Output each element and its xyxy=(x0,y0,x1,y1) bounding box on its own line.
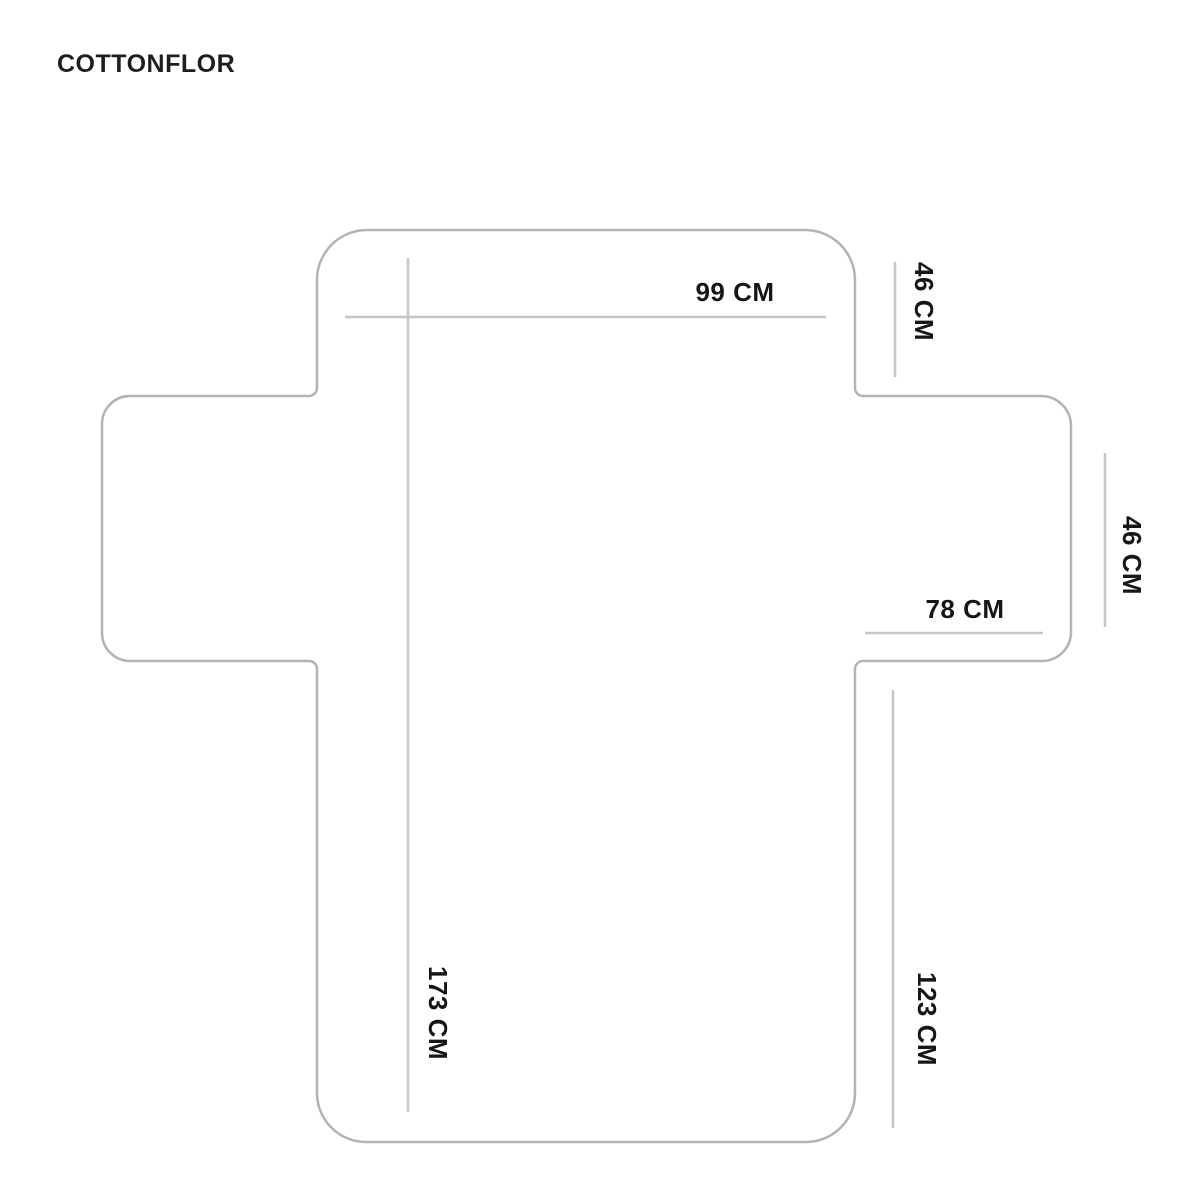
dimension-label-back-drop: 46 CM xyxy=(908,262,939,341)
diagram-canvas: COTTONFLOR 99 CM 46 CM 46 CM 78 CM 173 C… xyxy=(0,0,1200,1200)
dimension-label-top-width: 99 CM xyxy=(655,277,815,308)
dimension-label-total-length: 173 CM xyxy=(422,966,453,1060)
dimension-label-side-length: 123 CM xyxy=(911,972,942,1066)
dimension-label-seat-width: 78 CM xyxy=(895,594,1035,625)
dimension-label-arm-drop: 46 CM xyxy=(1116,516,1147,595)
